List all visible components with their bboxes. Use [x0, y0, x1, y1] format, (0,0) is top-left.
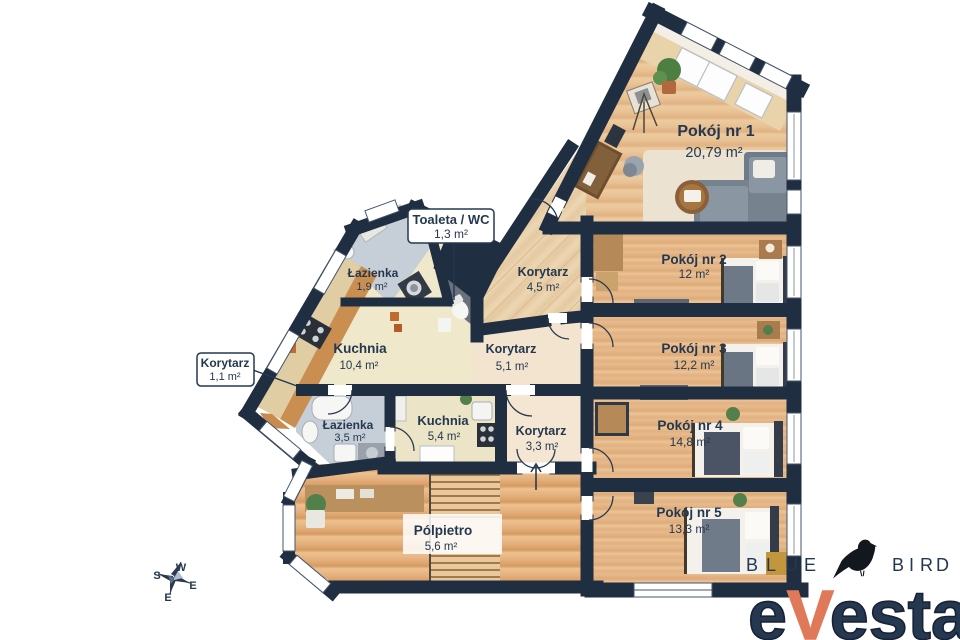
svg-text:eVesta: eVesta [748, 576, 960, 640]
svg-text:4,5 m²: 4,5 m² [527, 282, 560, 294]
svg-text:U: U [785, 555, 798, 575]
svg-text:Pokój nr 5: Pokój nr 5 [656, 505, 722, 520]
svg-text:I: I [909, 555, 914, 575]
svg-text:Kuchnia: Kuchnia [417, 413, 469, 428]
svg-text:Korytarz: Korytarz [486, 342, 537, 356]
svg-text:R: R [920, 555, 933, 575]
svg-text:5,1 m²: 5,1 m² [496, 361, 529, 373]
svg-text:E: E [164, 592, 171, 604]
svg-text:Łazienka: Łazienka [323, 418, 374, 432]
svg-text:Pokój nr 1: Pokój nr 1 [677, 123, 754, 140]
svg-text:5,4 m²: 5,4 m² [428, 431, 461, 443]
svg-text:L: L [766, 555, 776, 575]
svg-text:Pokój nr 4: Pokój nr 4 [657, 418, 723, 433]
svg-text:Kuchnia: Kuchnia [333, 341, 387, 356]
svg-text:Pólpietro: Pólpietro [414, 523, 473, 538]
svg-text:B: B [892, 555, 904, 575]
svg-text:D: D [936, 555, 949, 575]
svg-text:14,8 m²: 14,8 m² [670, 435, 711, 449]
svg-text:1,3 m²: 1,3 m² [434, 227, 468, 241]
svg-text:3,5 m²: 3,5 m² [334, 432, 366, 444]
svg-text:E: E [189, 580, 196, 592]
svg-text:Pokój nr 2: Pokój nr 2 [661, 252, 726, 267]
svg-text:Korytarz: Korytarz [518, 265, 569, 279]
svg-text:E: E [804, 555, 816, 575]
svg-text:1,1 m²: 1,1 m² [209, 371, 241, 383]
svg-text:1,9 m²: 1,9 m² [356, 281, 388, 293]
svg-text:20,79 m²: 20,79 m² [685, 145, 742, 161]
svg-text:Pokój nr 3: Pokój nr 3 [661, 341, 727, 356]
svg-text:Toaleta / WC: Toaleta / WC [412, 212, 490, 227]
svg-text:Korytarz: Korytarz [516, 424, 567, 438]
svg-text:3,3 m²: 3,3 m² [526, 441, 559, 453]
svg-text:W: W [176, 562, 187, 574]
svg-text:Korytarz: Korytarz [201, 356, 250, 370]
svg-text:13,3 m²: 13,3 m² [669, 522, 710, 536]
svg-text:12 m²: 12 m² [679, 267, 710, 281]
svg-text:S: S [153, 570, 160, 582]
svg-text:12,2 m²: 12,2 m² [674, 358, 715, 372]
svg-text:B: B [746, 555, 758, 575]
svg-text:5,6 m²: 5,6 m² [425, 541, 458, 553]
svg-text:Łazienka: Łazienka [348, 266, 399, 280]
svg-text:10,4 m²: 10,4 m² [340, 360, 379, 372]
